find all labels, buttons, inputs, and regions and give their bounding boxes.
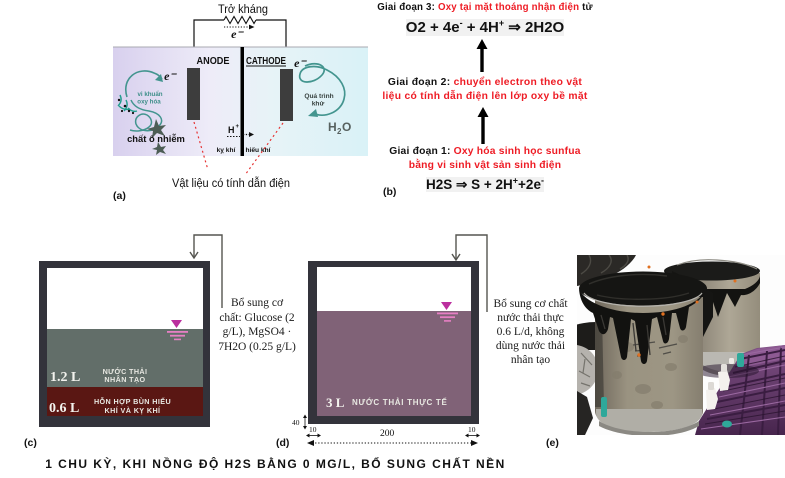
- svg-text:(a): (a): [113, 190, 126, 202]
- svg-text:H: H: [228, 125, 235, 135]
- svg-text:hiếu khí: hiếu khí: [246, 146, 272, 154]
- svg-text:e⁻: e⁻: [231, 27, 244, 41]
- svg-text:e⁻: e⁻: [164, 69, 177, 83]
- svg-text:10: 10: [309, 425, 317, 434]
- svg-text:Trở kháng: Trở kháng: [218, 4, 268, 16]
- svg-text:Quá trình: Quá trình: [304, 93, 333, 100]
- svg-text:vi khuẩn: vi khuẩn: [137, 91, 162, 98]
- svg-text:H: H: [328, 120, 337, 134]
- svg-text:chất ô nhiễm: chất ô nhiễm: [127, 133, 185, 144]
- svg-text:Vật liệu có tính dẫn điện: Vật liệu có tính dẫn điện: [172, 177, 290, 190]
- svg-text:+: +: [236, 124, 240, 130]
- svg-text:40: 40: [292, 418, 300, 427]
- svg-text:kỵ khí: kỵ khí: [217, 147, 237, 154]
- svg-text:O: O: [342, 120, 351, 134]
- svg-text:ANODE: ANODE: [197, 56, 230, 67]
- svg-text:oxy hóa: oxy hóa: [137, 99, 161, 106]
- svg-text:10: 10: [468, 425, 476, 434]
- svg-text:khử: khử: [312, 101, 325, 108]
- svg-text:CATHODE: CATHODE: [246, 56, 286, 67]
